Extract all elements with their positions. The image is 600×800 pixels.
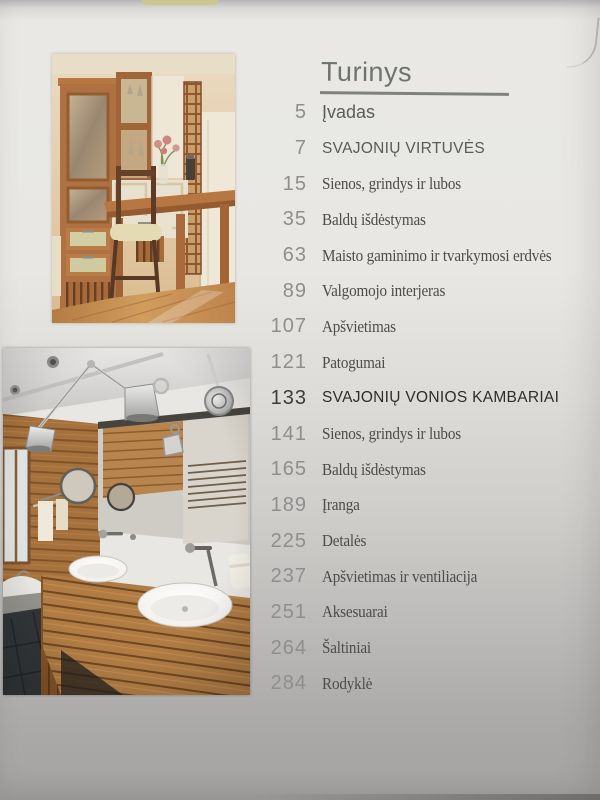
toc-entry-title: Įranga	[322, 495, 360, 515]
toc-page-number: 35	[239, 208, 307, 231]
toc-entry-row: 237 Apšvietimas ir ventiliacija	[239, 559, 599, 595]
book-page: Turinys 5 Įvadas 7 SVAJONIŲ VIRTUVĖS 15 …	[0, 0, 600, 800]
toc-entry-row: 63 Maisto gaminimo ir tvarkymosi erdvės	[239, 238, 599, 274]
toc-entry-title: SVAJONIŲ VIRTUVĖS	[322, 140, 485, 158]
page-bottom-edge	[252, 794, 600, 800]
toc-entry-row: 141 Sienos, grindys ir lubos	[239, 416, 599, 452]
toc-entry-title: Sienos, grindys ir lubos	[322, 174, 461, 194]
toc-entry-row: 5 Įvadas	[239, 95, 599, 131]
toc-entry-row: 7 SVAJONIŲ VIRTUVĖS	[239, 131, 599, 167]
toc-entry-title: Valgomojo interjeras	[322, 281, 445, 301]
toc-entry-title: Įvadas	[322, 102, 375, 123]
toc-entry-title: Aksesuarai	[322, 602, 388, 622]
toc-entry-row: 284 Rodyklė	[239, 666, 599, 702]
toc-entry-title: Rodyklė	[322, 674, 372, 694]
toc-entry-row: 264 Šaltiniai	[239, 630, 599, 666]
toc-entry-title: SVAJONIŲ VONIOS KAMBARIAI	[322, 389, 559, 407]
toc-entry-title: Apšvietimas ir ventiliacija	[322, 567, 477, 587]
toc-page-number: 5	[239, 101, 307, 124]
toc-entry-title: Sienos, grindys ir lubos	[322, 424, 461, 444]
toc-entry-title: Patogumai	[322, 353, 385, 373]
background-object-sliver	[142, 0, 218, 5]
toc-page-number: 63	[239, 244, 307, 267]
page-corner-curl	[566, 15, 599, 71]
toc-entry-title: Maisto gaminimo ir tvarkymosi erdvės	[322, 246, 551, 266]
toc-entry-title: Apšvietimas	[322, 317, 396, 337]
page-title: Turinys	[321, 57, 412, 89]
toc-page-number: 7	[239, 137, 307, 160]
bathroom-photo	[3, 348, 250, 695]
toc-page-number: 89	[239, 280, 307, 303]
toc-page-number: 15	[239, 173, 307, 196]
toc-entry-title: Baldų išdėstymas	[322, 210, 426, 230]
toc-entry-row: 165 Baldų išdėstymas	[239, 452, 599, 488]
photo-tone-overlay	[52, 54, 235, 323]
toc-entry-row: 189 Įranga	[239, 488, 599, 524]
toc-entry-row: 15 Sienos, grindys ir lubos	[239, 166, 599, 202]
toc-entry-row: 89 Valgomojo interjeras	[239, 273, 599, 309]
toc-entry-title: Baldų išdėstymas	[322, 460, 426, 480]
toc-entry-title: Šaltiniai	[322, 638, 371, 658]
toc-entry-row: 225 Detalės	[239, 523, 599, 559]
photo-vignette	[3, 348, 250, 695]
toc-entry-row: 121 Patogumai	[239, 345, 599, 381]
toc-list: 5 Įvadas 7 SVAJONIŲ VIRTUVĖS 15 Sienos, …	[239, 95, 599, 702]
toc-entry-title: Detalės	[322, 531, 366, 551]
toc-entry-row: 133 SVAJONIŲ VONIOS KAMBARIAI	[239, 381, 599, 417]
toc-page-number: 107	[239, 315, 307, 338]
toc-entry-row: 35 Baldų išdėstymas	[239, 202, 599, 238]
kitchen-photo	[52, 54, 235, 323]
toc-entry-row: 251 Aksesuarai	[239, 595, 599, 631]
toc-entry-row: 107 Apšvietimas	[239, 309, 599, 345]
